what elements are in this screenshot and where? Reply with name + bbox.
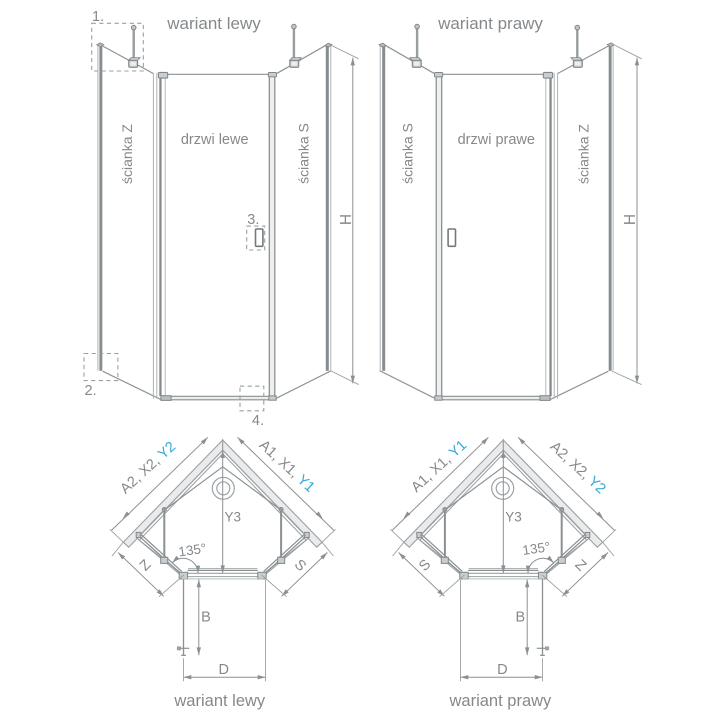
svg-text:H: H (338, 214, 355, 225)
svg-text:H: H (622, 214, 639, 225)
svg-text:wariant prawy: wariant prawy (437, 14, 543, 33)
svg-text:drzwi lewe: drzwi lewe (181, 132, 249, 148)
svg-text:ścianka S: ścianka S (296, 123, 312, 184)
svg-text:D: D (218, 662, 228, 678)
svg-text:B: B (201, 610, 211, 626)
svg-text:ścianka S: ścianka S (400, 123, 416, 184)
svg-text:S: S (291, 557, 309, 575)
svg-text:D: D (497, 662, 507, 678)
svg-text:wariant lewy: wariant lewy (166, 14, 261, 33)
svg-text:Z: Z (137, 557, 155, 575)
svg-text:ścianka Z: ścianka Z (119, 124, 135, 184)
svg-text:1.: 1. (92, 9, 104, 25)
svg-text:A2, X2, Y2: A2, X2, Y2 (547, 439, 609, 497)
svg-text:Z: Z (572, 557, 590, 575)
svg-text:B: B (515, 610, 525, 626)
svg-text:wariant prawy: wariant prawy (449, 692, 553, 710)
svg-text:135°: 135° (521, 539, 551, 558)
svg-text:Y3: Y3 (505, 510, 522, 525)
svg-text:ścianka Z: ścianka Z (576, 124, 592, 184)
svg-text:A2, X2, Y2: A2, X2, Y2 (117, 439, 179, 497)
svg-text:Y3: Y3 (225, 510, 242, 525)
svg-text:4.: 4. (252, 413, 264, 429)
svg-text:2.: 2. (85, 383, 97, 399)
svg-text:wariant lewy: wariant lewy (173, 692, 266, 710)
svg-text:135°: 135° (177, 541, 207, 560)
svg-text:3.: 3. (247, 212, 259, 228)
svg-text:drzwi prawe: drzwi prawe (458, 132, 535, 148)
